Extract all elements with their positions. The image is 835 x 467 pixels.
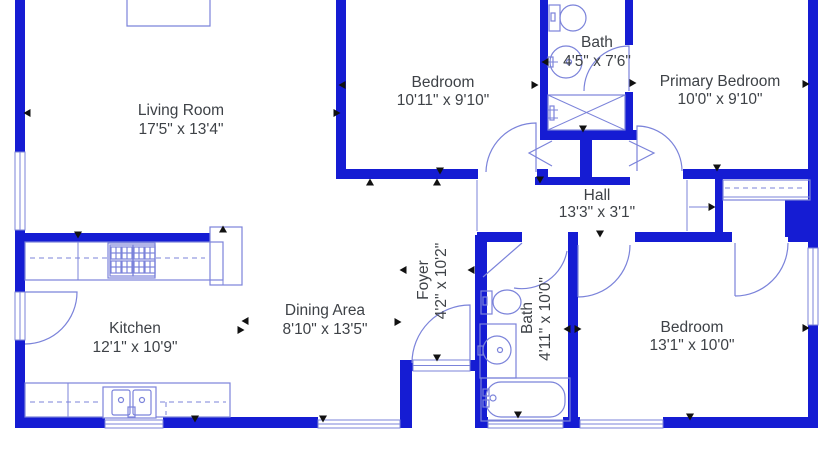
- room-name-primary-bedroom: Primary Bedroom: [660, 73, 781, 90]
- room-dims-foyer: 4'2" x 10'2": [433, 243, 450, 319]
- fixtures: [25, 0, 810, 421]
- window: [580, 420, 663, 428]
- floor-plan-page: Living Room 17'5" x 13'4" Bedroom 10'11"…: [0, 0, 835, 467]
- room-dims-living-room: 17'5" x 13'4": [138, 121, 223, 138]
- door-swing-bedroom-top: [486, 123, 536, 172]
- room-dims-bedroom-top: 10'11" x 9'10": [397, 92, 489, 109]
- closet-door-left: [529, 141, 552, 166]
- floor-plan: Living Room 17'5" x 13'4" Bedroom 10'11"…: [0, 0, 835, 467]
- living-room-builtin: [127, 0, 210, 26]
- room-name-bedroom-right: Bedroom: [661, 319, 724, 336]
- room-name-dining-area: Dining Area: [285, 302, 366, 319]
- room-name-bath-lower: Bath: [519, 302, 536, 334]
- room-name-bedroom-top: Bedroom: [412, 74, 475, 91]
- window: [105, 420, 163, 428]
- door-swing-bath-lower: [483, 243, 567, 289]
- room-dims-bedroom-right: 13'1" x 10'0": [649, 337, 734, 354]
- window: [808, 248, 818, 325]
- kitchen-sink-fixture: [103, 387, 156, 418]
- closet-door-right: [629, 141, 654, 166]
- room-dims-hall: 13'3" x 3'1": [559, 204, 635, 221]
- door-swing-bedroom-right-closet: [735, 243, 788, 296]
- stove-fixture: [108, 243, 155, 278]
- room-dims-kitchen: 12'1" x 10'9": [92, 339, 177, 356]
- room-dims-primary-bedroom: 10'0" x 9'10": [677, 91, 762, 108]
- window: [318, 420, 400, 428]
- bathtub-fixture: [481, 378, 570, 421]
- room-dims-bath-lower: 4'11" x 10'0": [537, 277, 554, 361]
- room-name-kitchen: Kitchen: [109, 320, 161, 337]
- room-name-hall: Hall: [584, 187, 611, 204]
- door-swing-kitchen-side: [25, 292, 77, 344]
- closet-rod-shelf: [723, 180, 810, 200]
- shower-fixture: [548, 95, 625, 130]
- room-labels: Living Room 17'5" x 13'4" Bedroom 10'11"…: [92, 34, 780, 361]
- room-name-foyer: Foyer: [415, 260, 432, 300]
- room-name-living-room: Living Room: [138, 102, 224, 119]
- room-name-bath-top: Bath: [581, 34, 613, 51]
- entry-door-opening: [413, 360, 470, 371]
- room-dims-bath-top: 4'5" x 7'6": [563, 53, 631, 70]
- door-swing-bedroom-right-hall: [578, 245, 630, 297]
- toilet-fixture-top-bath: [549, 5, 586, 31]
- window: [15, 292, 25, 340]
- window: [15, 152, 25, 230]
- room-dims-dining-area: 8'10" x 13'5": [282, 321, 367, 338]
